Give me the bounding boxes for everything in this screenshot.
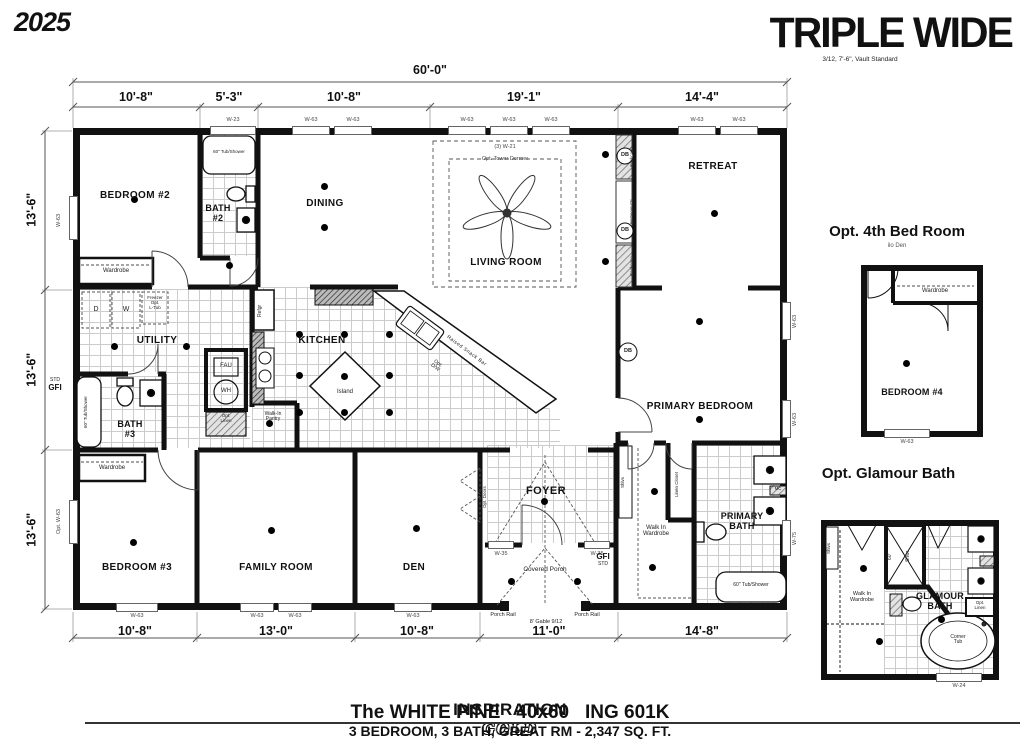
window-w63	[69, 196, 78, 240]
ceiling-light-dot	[574, 578, 581, 585]
window-w63	[116, 603, 158, 612]
gable-label: 8' Gable 9/12	[516, 620, 576, 626]
floorplan-sheet: 2025 TRIPLE WIDE 3/12, 7'-6", Vault Stan…	[0, 0, 1024, 751]
inset-bed4-subtitle: ilo Den	[817, 243, 977, 249]
dim-bottom-1: 10'-8"	[100, 625, 170, 639]
ceiling-light-dot	[541, 498, 548, 505]
porch-post-left	[500, 601, 509, 611]
gfi-label: GFI	[44, 384, 66, 393]
dim-left-2: 13'-6"	[25, 340, 39, 400]
room-label-primary-bedroom: PRIMARY BEDROOM	[620, 402, 780, 413]
window-w63	[532, 126, 570, 135]
window-w63	[782, 302, 791, 340]
dim-top-4: 19'-1"	[489, 91, 559, 105]
opt-linen-label: Opt. Linen	[212, 414, 240, 424]
shelves-label: Shlvs	[827, 529, 832, 567]
pantry-label: Walk-In Pantry	[250, 412, 296, 423]
window-label: Opt. W-63	[57, 496, 63, 548]
room-label-family: FAMILY ROOM	[221, 563, 331, 574]
ceiling-light-dot	[649, 564, 656, 571]
window-label: W-63	[720, 118, 758, 124]
dryer-label: D	[86, 306, 106, 314]
ent-center-label: Ent'ment Ctr	[630, 180, 635, 244]
washer-label: W	[116, 306, 136, 314]
window-label: W-23	[210, 118, 256, 124]
window-w23	[210, 126, 256, 135]
db-label: DB	[617, 153, 633, 159]
window-label: W-63	[116, 614, 158, 620]
window-w63	[334, 126, 372, 135]
porch-post-right	[581, 601, 590, 611]
opt-linen-label: Opt. Linen	[966, 601, 994, 611]
porch-rail-label: Porch Rail	[564, 613, 610, 619]
window-label: W-63	[238, 614, 276, 620]
ceiling-light-dot	[268, 527, 275, 534]
window-label: W-35	[488, 552, 514, 558]
window-w63	[240, 603, 274, 612]
room-label-bedroom2: BEDROOM #2	[85, 191, 185, 202]
window-label: W-63	[793, 400, 799, 438]
tub-shower-label: 60" Tub/Shower	[204, 150, 254, 155]
db-label: DB	[617, 228, 633, 234]
bookcase-label: Bookcase	[630, 246, 635, 286]
room-label-living: LIVING ROOM	[446, 258, 566, 269]
window-label: W-63	[884, 440, 930, 446]
dim-overall-width: 60'-0"	[390, 64, 470, 78]
window-label: W-63	[448, 118, 486, 124]
window-w63	[720, 126, 758, 135]
ceiling-light-dot	[130, 539, 137, 546]
room-label-bath2: BATH #2	[196, 204, 240, 223]
ceiling-light-dot	[696, 416, 703, 423]
window-w35	[488, 541, 514, 549]
kitchen-fixtures	[252, 289, 556, 420]
shelves-label: Shlvs	[621, 462, 626, 502]
window-w35	[584, 541, 610, 549]
ceiling-light-dot	[696, 318, 703, 325]
ceiling-light-dot	[386, 331, 393, 338]
dim-top-3: 10'-8"	[309, 91, 379, 105]
wardrobe-label: Wardrobe	[82, 465, 142, 471]
ceiling-light-dot	[321, 183, 328, 190]
db-label: DB	[620, 349, 636, 355]
corner-tub-label: Corner Tub	[938, 635, 978, 646]
dim-bottom-2: 13'-0"	[241, 625, 311, 639]
room-label-dining: DINING	[285, 199, 365, 210]
window-label: W-63	[490, 118, 528, 124]
opt-doors-label: Opt. Doors	[483, 470, 488, 524]
island-label: Island	[320, 389, 370, 395]
room-label-utility: UTILITY	[117, 336, 197, 347]
ceiling-light-dot	[341, 373, 348, 380]
porch-rail-label: Porch Rail	[480, 613, 526, 619]
dim-bottom-5: 14'-8"	[667, 625, 737, 639]
dormer-label: Opt. Tower Dormer	[455, 157, 555, 163]
dim-bottom-4: 11'-0"	[514, 625, 584, 639]
window-label: W-75	[793, 520, 799, 556]
room-label-bath3: BATH #3	[108, 420, 152, 439]
ceiling-light-dot	[341, 409, 348, 416]
window-w63	[292, 126, 330, 135]
ceiling-light-dot	[903, 360, 910, 367]
window-label: W-63	[334, 118, 372, 124]
window-label: W-63	[793, 302, 799, 340]
window-w63	[490, 126, 528, 135]
dim-top-2: 5'-3"	[194, 91, 264, 105]
shower-size-label: 60"	[888, 546, 893, 566]
dim-bottom-3: 10'-8"	[382, 625, 452, 639]
ceiling-light-dot	[321, 224, 328, 231]
page-subtitle: 3/12, 7'-6", Vault Standard	[760, 56, 960, 63]
room-label-glamour-bath: GLAMOUR BATH	[910, 592, 970, 611]
room-label-porch: Covered Porch	[505, 566, 585, 573]
room-label-walkin-wardrobe: Walk In Wardrobe	[626, 525, 686, 538]
mc-label: MC	[770, 487, 786, 492]
room-label-retreat: RETREAT	[663, 162, 763, 173]
window-w63	[394, 603, 432, 612]
ceiling-light-dot	[711, 210, 718, 217]
room-label-den: DEN	[384, 563, 444, 574]
ceiling-light-dot	[508, 578, 515, 585]
ceiling-light-dot	[602, 258, 609, 265]
window-opt-w63	[69, 500, 78, 544]
window-label: W-63	[57, 200, 63, 240]
dim-top-5: 14'-4"	[667, 91, 737, 105]
tub-shower-label: 60" Tub/Shower	[716, 583, 786, 588]
window-w63	[884, 429, 930, 438]
dim-left-1: 13'-6"	[25, 180, 39, 240]
fau-label: FAU	[214, 363, 238, 369]
ceiling-light-dot	[386, 372, 393, 379]
ceiling-light-dot	[938, 616, 945, 623]
model-specs: 3 BEDROOM, 3 BATH, GREAT RM - 2,347 SQ. …	[260, 724, 760, 739]
ceiling-light-dot	[413, 525, 420, 532]
refrigerator-label: Refgr	[258, 293, 263, 329]
inset-bed4-title: Opt. 4th Bed Room	[817, 224, 977, 240]
wardrobe-label: Wardrobe	[86, 268, 146, 274]
window-w63	[448, 126, 486, 135]
window-label: W-63	[292, 118, 330, 124]
window-w63	[678, 126, 716, 135]
model-name: The WHITE PINE 40x60 ING 601K	[260, 703, 760, 724]
dim-left-3: 13'-6"	[25, 500, 39, 560]
window-label: (3) W-21	[465, 145, 545, 151]
window-w75	[782, 520, 791, 556]
ceiling-light-dot	[860, 565, 867, 572]
ceiling-fan	[461, 172, 552, 259]
page-title: TRIPLE WIDE	[716, 10, 1012, 56]
window-label: W-24	[936, 684, 982, 690]
ceiling-light-dot	[386, 409, 393, 416]
room-label-foyer: FOYER	[506, 486, 586, 498]
freezer-label: Freezer Opt. L-Tub	[141, 296, 169, 311]
window-w63	[782, 400, 791, 438]
dim-top-1: 10'-8"	[101, 91, 171, 105]
window-w24	[936, 673, 982, 682]
room-label-primary-bath: PRIMARY BATH	[711, 512, 773, 531]
ceiling-light-dot	[296, 409, 303, 416]
window-label: W-63	[678, 118, 716, 124]
room-label-kitchen: KITCHEN	[282, 336, 362, 347]
window-label: W-63	[276, 614, 314, 620]
ceiling-light-dot	[226, 262, 233, 269]
std-label: STD	[590, 562, 616, 567]
window-label: W-63	[532, 118, 570, 124]
inset-glamour-title: Opt. Glamour Bath	[806, 466, 971, 482]
ceiling-light-dot	[876, 638, 883, 645]
linen-closet-label: Linen Closet	[675, 455, 680, 513]
plan-year: 2025	[14, 8, 114, 37]
tub-shower-label: 60" Tub/Shower	[84, 382, 89, 442]
room-label-bedroom4: BEDROOM #4	[862, 388, 962, 398]
room-label-walkin-wardrobe: Walk In Wardrobe	[834, 592, 890, 604]
ceiling-light-dot	[651, 488, 658, 495]
ceiling-light-dot	[296, 372, 303, 379]
wardrobe-label: Wardrobe	[905, 288, 965, 294]
shower-label: Shwr	[906, 540, 911, 572]
ceiling-light-dot	[602, 151, 609, 158]
room-label-bedroom3: BEDROOM #3	[87, 563, 187, 574]
wh-label: WH	[214, 388, 238, 394]
window-w63	[278, 603, 312, 612]
window-label: W-63	[394, 614, 432, 620]
